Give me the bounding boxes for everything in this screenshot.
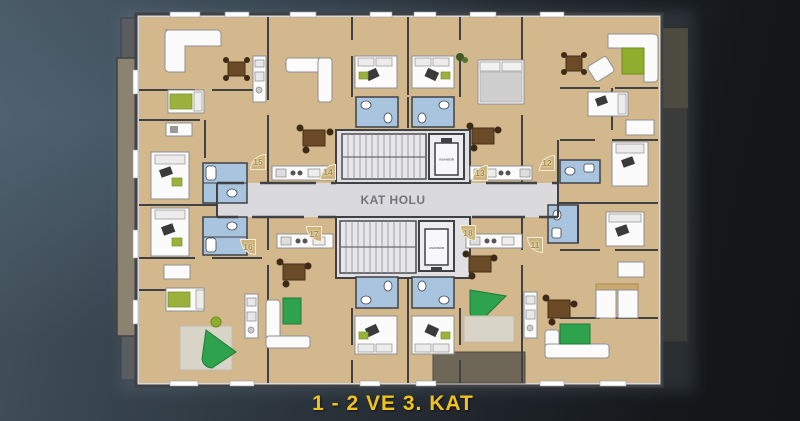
apartment-number-18: 18 <box>460 225 476 241</box>
apartment-number-12: 12 <box>539 155 555 171</box>
apartment-badges: 1514131216171811 <box>0 0 800 421</box>
apartment-number-14: 14 <box>320 164 336 180</box>
apartment-number-17: 17 <box>306 226 322 242</box>
floor-caption: 1 - 2 VE 3. KAT <box>312 392 474 416</box>
apartment-number-15: 15 <box>250 154 266 170</box>
floor-plan-scene: ASANSÖR ASANSÖR <box>0 0 800 421</box>
apartment-number-11: 11 <box>527 237 543 253</box>
apartment-number-16: 16 <box>240 239 256 255</box>
apartment-number-13: 13 <box>472 165 488 181</box>
